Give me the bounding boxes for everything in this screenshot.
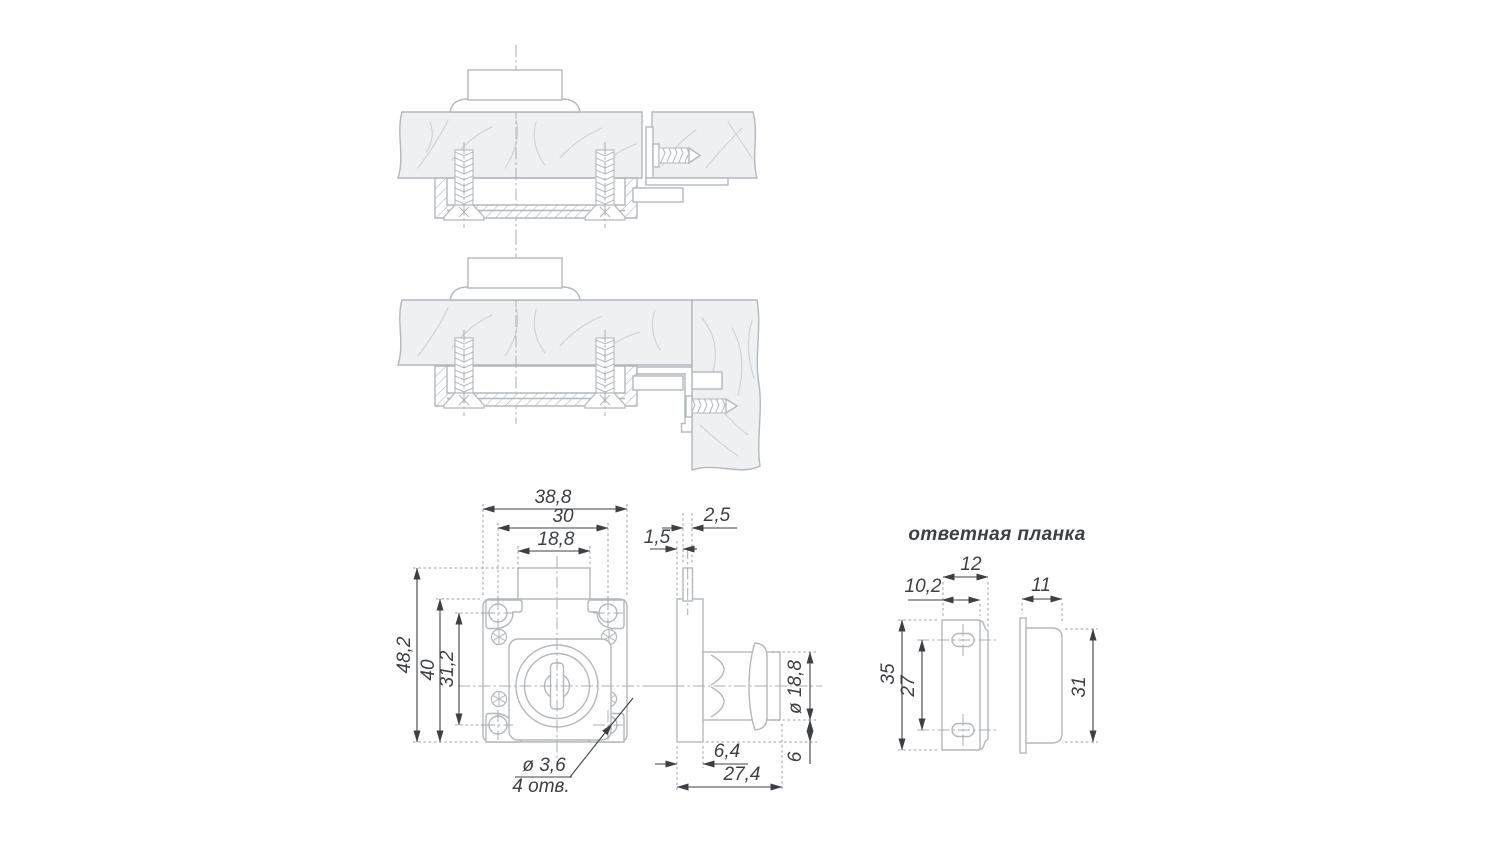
hole-callout-diameter: ø 3,6 [522, 755, 566, 776]
latch-mortise-slot [692, 372, 722, 389]
installation-section-a [398, 45, 757, 236]
dim-label: 10,2 [905, 576, 942, 597]
dim-label: 18,8 [538, 529, 575, 550]
dim-label: 27 [898, 674, 919, 698]
strike-plate-title: ответная планка [908, 524, 1085, 545]
dim-label: 40 [418, 659, 439, 681]
strike-plate-flange-profile [1020, 618, 1026, 753]
dim-label: 2,5 [703, 505, 731, 526]
lock-body-profile [677, 599, 703, 742]
dim-label: 1,5 [644, 527, 671, 548]
strike-plate-section: ответная планка 12 10,2 [878, 524, 1098, 753]
dim-latch-thickness: 2,5 [662, 505, 737, 528]
dim-label: 30 [552, 506, 574, 527]
dim-latch-offset: 1,5 [644, 527, 697, 549]
dim-overall-width: 12 [943, 554, 988, 577]
strike-plate-section-lip [646, 178, 728, 185]
strike-plate-front-view: 12 10,2 35 27 [878, 554, 998, 750]
strike-plate-box-profile [1026, 628, 1062, 743]
dim-total-depth: 27,4 [677, 764, 782, 787]
dim-height: 31 [1069, 629, 1093, 742]
dim-flat-width: 10,2 [905, 576, 980, 600]
dim-label: 6,4 [714, 741, 740, 762]
dim-label: 11 [1031, 575, 1051, 596]
dim-label: ø 18,8 [785, 660, 806, 714]
installation-section-b [398, 233, 760, 470]
dim-label: 35 [878, 663, 899, 685]
dim-label: 27,4 [723, 764, 761, 785]
strike-plate-section-vertical [646, 127, 653, 178]
dim-label: 31 [1069, 676, 1090, 697]
dim-label: 38,8 [535, 487, 572, 508]
dim-overall-height: 48,2 [394, 568, 417, 742]
dim-label: 31,2 [437, 650, 458, 687]
wood-panel-right [652, 112, 757, 178]
wood-panel-horizontal [398, 300, 692, 365]
dim-label: 48,2 [394, 636, 415, 673]
dim-label: 12 [960, 554, 982, 575]
dim-depth: 11 [1022, 575, 1062, 599]
latch-bolt [518, 568, 590, 601]
dim-latch-width: 18,8 [518, 529, 590, 551]
technical-drawing-canvas: 38,8 30 18,8 48,2 40 31,2 ø 3,6 4 отв. [0, 0, 1500, 844]
dim-label: 6 [785, 751, 806, 762]
hole-callout-count: 4 отв. [512, 776, 569, 797]
lock-side-view: 2,5 1,5 ø 18,8 6 6,4 27,4 [644, 505, 822, 791]
strike-plate-side-view: 11 31 [1020, 575, 1098, 753]
dim-case-depth: 6,4 [655, 741, 748, 764]
